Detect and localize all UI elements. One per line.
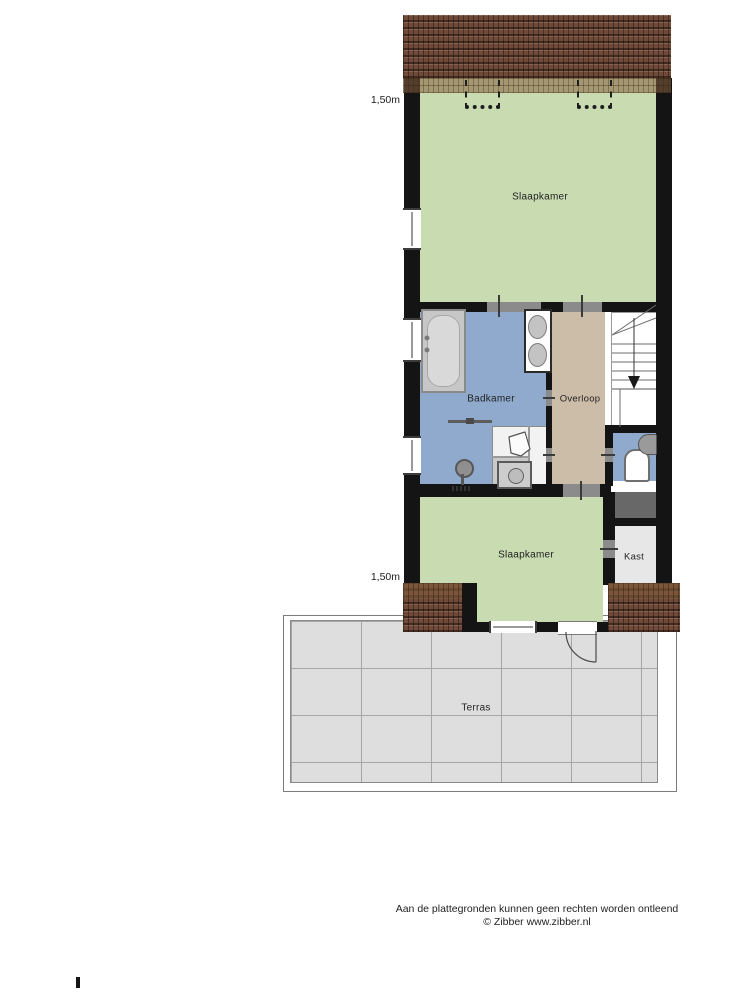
window-bedroom-top (403, 208, 421, 250)
void-area (610, 492, 656, 518)
room-label-bathroom: Badkamer (467, 394, 515, 405)
wall-bottom-pillar (462, 583, 477, 632)
washbasin-icon (528, 343, 547, 367)
washing-machine-icon (497, 461, 532, 489)
page-corner-mark (76, 977, 80, 988)
opening-tick (543, 454, 555, 456)
opening-tick (601, 454, 615, 456)
roof-top-eave (403, 78, 671, 93)
wall-closet-top (610, 518, 656, 526)
shower-screen-handle (466, 418, 474, 424)
washing-machine-drum (508, 468, 524, 484)
disclaimer-text: Aan de plattegronden kunnen geen rechten… (396, 903, 679, 915)
staircase-area (611, 312, 659, 430)
terrace-floor (290, 620, 658, 783)
room-label-closet: Kast (624, 552, 644, 563)
window-pane (411, 322, 413, 358)
room-label-bedroom-top: Slaapkamer (512, 192, 568, 203)
bathtub-icon (421, 309, 466, 393)
shower-icon (455, 459, 474, 478)
room-bedroom-top (420, 78, 656, 302)
terrace-door-opening (558, 621, 597, 635)
wall-right (656, 78, 672, 583)
floorplan: Slaapkamer Badkamer Overloop Slaapkamer … (0, 0, 750, 1000)
shower-drain-icon (452, 486, 470, 491)
wall-wc-top (611, 425, 656, 433)
opening-tick (581, 295, 583, 317)
dimension-label-bottom: 1,50m (371, 571, 400, 583)
copyright-text: © Zibber www.zibber.nl (483, 916, 591, 928)
wall-bedroom-closet (603, 492, 615, 585)
closet-divider (492, 456, 529, 458)
shower-stem (461, 474, 464, 485)
opening-tick (580, 481, 582, 500)
room-label-bedroom-bottom: Slaapkamer (498, 550, 554, 561)
wall-bottom-seg1 (477, 622, 489, 632)
corner-sink-icon (638, 434, 657, 455)
window-bathroom-lower (403, 436, 421, 475)
opening-tick (543, 397, 555, 399)
window-bathroom-upper (403, 318, 421, 362)
washbasin-counter-icon (524, 309, 552, 373)
room-bedroom-bottom (420, 497, 603, 587)
bathtub-basin (427, 315, 460, 387)
room-bedroom-bottom-lower (477, 585, 603, 622)
roof-window-icon (577, 80, 612, 109)
opening-tick (498, 295, 500, 317)
window-pane (493, 626, 533, 628)
room-label-landing: Overloop (560, 394, 601, 405)
opening-tick (600, 548, 618, 550)
roof-bottom-left-eave (403, 583, 463, 599)
window-bedroom-bottom (489, 621, 537, 633)
window-pane (411, 212, 413, 246)
window-pane (411, 440, 413, 471)
washbasin-icon (528, 315, 547, 339)
roof-bottom-right-eave (608, 583, 680, 599)
room-label-terrace: Terras (461, 703, 490, 714)
roof-window-icon (465, 80, 500, 109)
dimension-label-top: 1,50m (371, 94, 400, 106)
roof-top (403, 15, 671, 78)
